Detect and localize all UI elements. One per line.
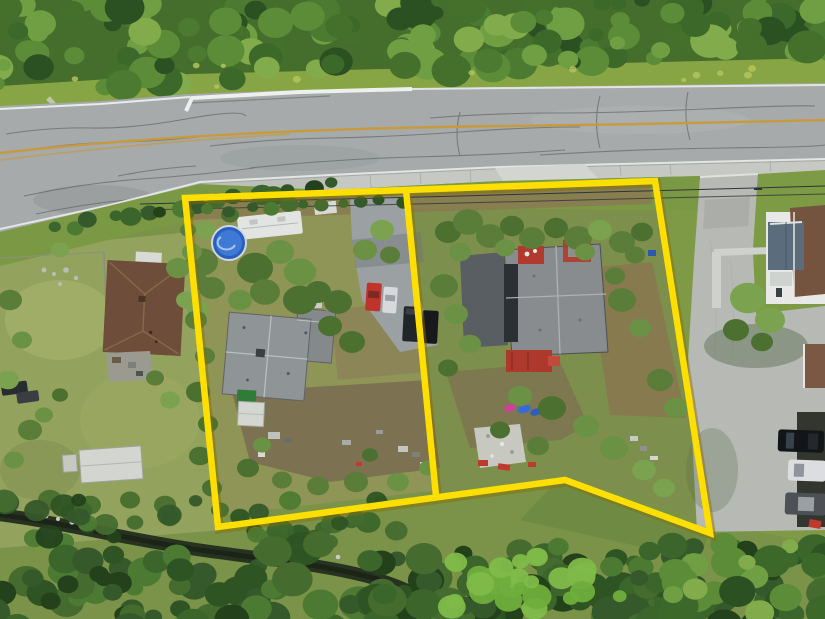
tree-blob <box>103 584 123 601</box>
tree-blob <box>307 477 329 496</box>
tree-blob <box>589 28 604 41</box>
tree-blob <box>625 247 645 264</box>
tree-blob <box>730 283 766 314</box>
aerial-photo-frame <box>0 0 825 619</box>
tree-blob <box>35 525 63 549</box>
tree-blob <box>410 24 436 46</box>
tree-blob <box>446 594 464 609</box>
tree-blob <box>738 18 762 38</box>
tree-blob <box>630 570 648 586</box>
tree-blob <box>432 54 472 88</box>
tree-blob <box>221 64 226 68</box>
tree-blob <box>263 202 279 216</box>
tree-blob <box>449 243 471 262</box>
tree-blob <box>338 199 348 208</box>
tree-blob <box>237 459 259 478</box>
tree-blob <box>693 72 701 79</box>
tree-blob <box>548 538 569 556</box>
aerial-photo <box>0 0 825 619</box>
tree-blob <box>573 415 599 437</box>
tree-blob <box>605 268 625 285</box>
tree-blob <box>653 479 675 498</box>
tree-blob <box>154 57 174 74</box>
right-neighbor-house <box>766 205 825 304</box>
tree-blob <box>146 370 164 385</box>
tree-blob <box>126 515 143 529</box>
tree-blob <box>570 581 595 602</box>
tree-blob <box>755 307 785 333</box>
tree-blob <box>588 220 612 240</box>
tree-blob <box>258 8 294 38</box>
tree-blob <box>569 66 577 73</box>
tree-blob <box>35 407 53 422</box>
tree-blob <box>719 576 755 607</box>
tree-blob <box>64 47 84 64</box>
tree-blob <box>526 548 548 567</box>
tree-blob <box>490 422 510 439</box>
tree-blob <box>250 279 280 305</box>
tree-blob <box>353 240 377 260</box>
tree-blob <box>519 227 545 249</box>
tree-blob <box>324 290 352 314</box>
chimney <box>138 296 145 302</box>
tree-blob <box>49 222 61 232</box>
tree-blob <box>681 12 710 37</box>
tree-blob <box>522 45 547 66</box>
tree-blob <box>120 207 142 225</box>
white-shed <box>237 401 264 426</box>
tree-blob <box>318 316 342 336</box>
tree-blob <box>600 557 623 577</box>
tree-blob <box>207 35 244 67</box>
tree-blob <box>510 11 536 33</box>
tree-blob <box>219 68 246 91</box>
tree-blob <box>290 2 324 31</box>
tree-blob <box>610 37 625 50</box>
tree-blob <box>647 369 673 391</box>
tree-blob <box>469 70 475 75</box>
tree-blob <box>344 472 368 492</box>
tree-blob <box>298 200 308 209</box>
tree-blob <box>576 562 591 575</box>
tree-blob <box>189 495 202 506</box>
tree-blob <box>71 494 86 507</box>
tree-blob <box>524 575 539 588</box>
tree-blob <box>466 572 494 596</box>
tree-blob <box>748 65 756 72</box>
tree-blob <box>660 3 684 24</box>
tree-blob <box>683 579 708 600</box>
tree-blob <box>495 240 515 257</box>
tree-blob <box>372 584 396 605</box>
tree-blob <box>631 223 653 242</box>
tree-blob <box>188 46 207 63</box>
tree-blob <box>544 218 568 238</box>
tree-blob <box>385 521 408 540</box>
tree-blob <box>103 546 124 564</box>
tree-blob <box>744 72 752 79</box>
tree-blob <box>657 533 687 559</box>
tree-blob <box>72 76 78 81</box>
tree-blob <box>370 220 394 240</box>
tree-blob <box>283 286 317 315</box>
tree-blob <box>508 386 532 406</box>
tree-blob <box>608 288 636 312</box>
tree-blob <box>52 388 68 402</box>
tree-blob <box>639 542 661 560</box>
tree-blob <box>751 333 773 352</box>
tree-blob <box>430 274 458 298</box>
tree-blob <box>228 290 252 310</box>
tree-blob <box>12 332 32 349</box>
tree-blob <box>23 54 53 80</box>
tree-blob <box>632 460 656 480</box>
tree-blob <box>380 247 400 264</box>
tree-blob <box>58 575 79 593</box>
garage-roof <box>804 344 825 388</box>
tree-blob <box>788 30 825 63</box>
front-door <box>776 288 782 297</box>
tree-blob <box>527 437 549 456</box>
tree-blob <box>663 586 683 603</box>
tree-blob <box>193 63 200 69</box>
tree-blob <box>331 516 348 530</box>
tree-blob <box>78 212 97 228</box>
tree-blob <box>160 392 180 409</box>
tree-blob <box>717 71 723 76</box>
tree-blob <box>681 78 686 83</box>
tree-blob <box>120 492 140 509</box>
tree-blob <box>325 177 337 188</box>
tree-blob <box>325 15 353 39</box>
tree-blob <box>651 42 670 58</box>
tree-blob <box>314 199 329 211</box>
tree-blob <box>538 396 566 420</box>
tree-blob <box>205 582 234 607</box>
tree-blob <box>8 23 28 40</box>
tree-blob <box>293 76 301 83</box>
tree-blob <box>195 222 215 239</box>
tree-blob <box>272 562 313 596</box>
tree-blob <box>24 500 49 521</box>
tree-blob <box>247 202 258 212</box>
tree-blob <box>406 543 443 574</box>
red-car <box>365 282 382 311</box>
tree-blob <box>279 491 301 510</box>
tree-blob <box>303 531 334 558</box>
tree-blob <box>272 472 292 489</box>
tree-blob <box>444 304 468 324</box>
tree-blob <box>70 509 90 526</box>
tree-blob <box>723 319 749 341</box>
tree-blob <box>459 335 481 354</box>
tree-blob <box>284 258 316 285</box>
tree-blob <box>266 240 294 264</box>
tree-blob <box>166 258 190 278</box>
tree-blob <box>254 57 280 79</box>
tree-blob <box>4 452 24 469</box>
chimney <box>256 349 266 358</box>
tree-blob <box>253 437 271 452</box>
tree-blob <box>178 18 200 37</box>
tree-blob <box>362 448 378 462</box>
tree-blob <box>201 204 213 214</box>
tree-blob <box>474 48 503 73</box>
tree-blob <box>489 557 513 578</box>
tree-blob <box>454 27 484 53</box>
tree-blob <box>438 360 458 377</box>
tree-blob <box>25 10 56 37</box>
tree-blob <box>387 473 409 492</box>
tree-blob <box>61 1 85 21</box>
tree-blob <box>357 550 382 571</box>
tree-blob <box>153 207 166 218</box>
tree-blob <box>256 536 292 567</box>
tree-blob <box>167 558 194 581</box>
tree-blob <box>321 55 344 75</box>
tree-blob <box>444 553 467 572</box>
tree-blob <box>738 555 755 570</box>
tree-blob <box>600 436 628 460</box>
tree-blob <box>51 242 69 257</box>
tree-blob <box>222 206 235 217</box>
tree-blob <box>89 566 108 582</box>
tree-blob <box>214 84 219 88</box>
tree-blob <box>339 331 365 353</box>
tree-blob <box>106 70 142 100</box>
tree-blob <box>575 244 595 261</box>
tree-blob <box>18 420 42 440</box>
tree-blob <box>613 590 627 602</box>
tree-blob <box>22 569 43 587</box>
tree-blob <box>770 584 802 611</box>
tree-blob <box>389 52 421 79</box>
tree-blob <box>303 590 339 619</box>
tree-blob <box>535 10 553 25</box>
white-car <box>382 287 398 314</box>
tree-blob <box>209 8 242 36</box>
tree-blob <box>495 588 523 612</box>
tree-blob <box>41 592 61 609</box>
tree-blob <box>157 505 182 526</box>
tree-blob <box>558 51 579 69</box>
above-ground-pool <box>212 226 246 260</box>
tree-blob <box>664 398 688 418</box>
tree-blob <box>629 319 651 338</box>
